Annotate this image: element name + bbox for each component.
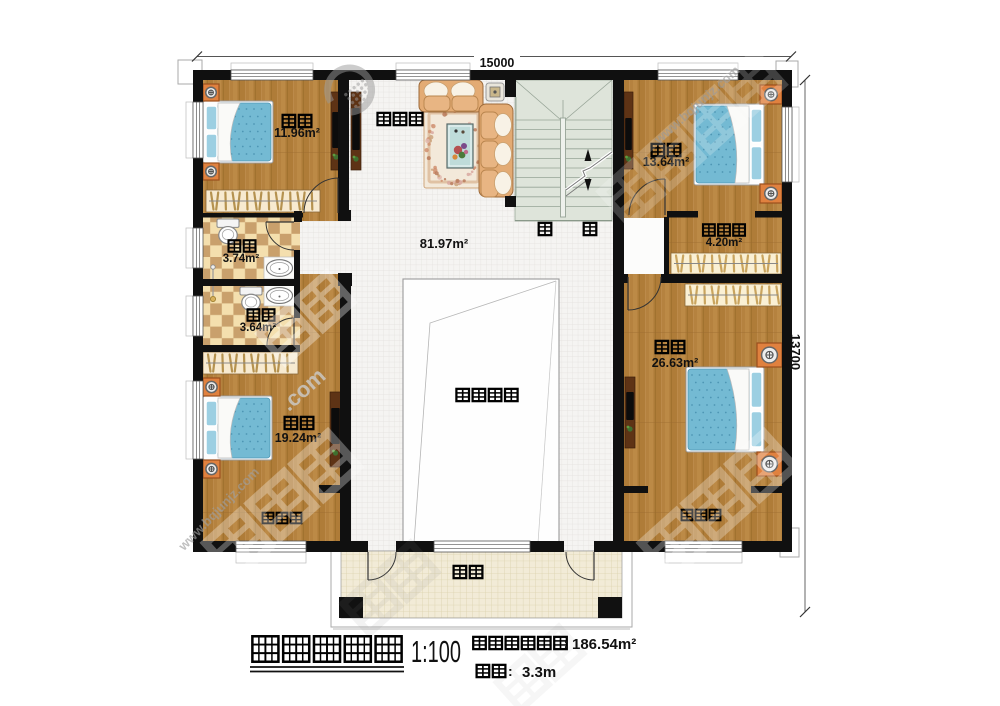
svg-text:186.54m²: 186.54m² (572, 636, 636, 653)
svg-text:1:100: 1:100 (411, 634, 461, 669)
svg-text:11.96m²: 11.96m² (274, 126, 320, 140)
svg-text:3.74m²: 3.74m² (223, 253, 260, 265)
svg-text::: : (508, 663, 513, 679)
svg-text:3.3m: 3.3m (522, 664, 556, 681)
svg-text:4.20m²: 4.20m² (706, 237, 743, 249)
svg-text:15000: 15000 (480, 56, 515, 70)
svg-text::: : (564, 635, 569, 651)
svg-text:81.97m²: 81.97m² (420, 236, 469, 251)
svg-text:26.63m²: 26.63m² (652, 356, 699, 370)
